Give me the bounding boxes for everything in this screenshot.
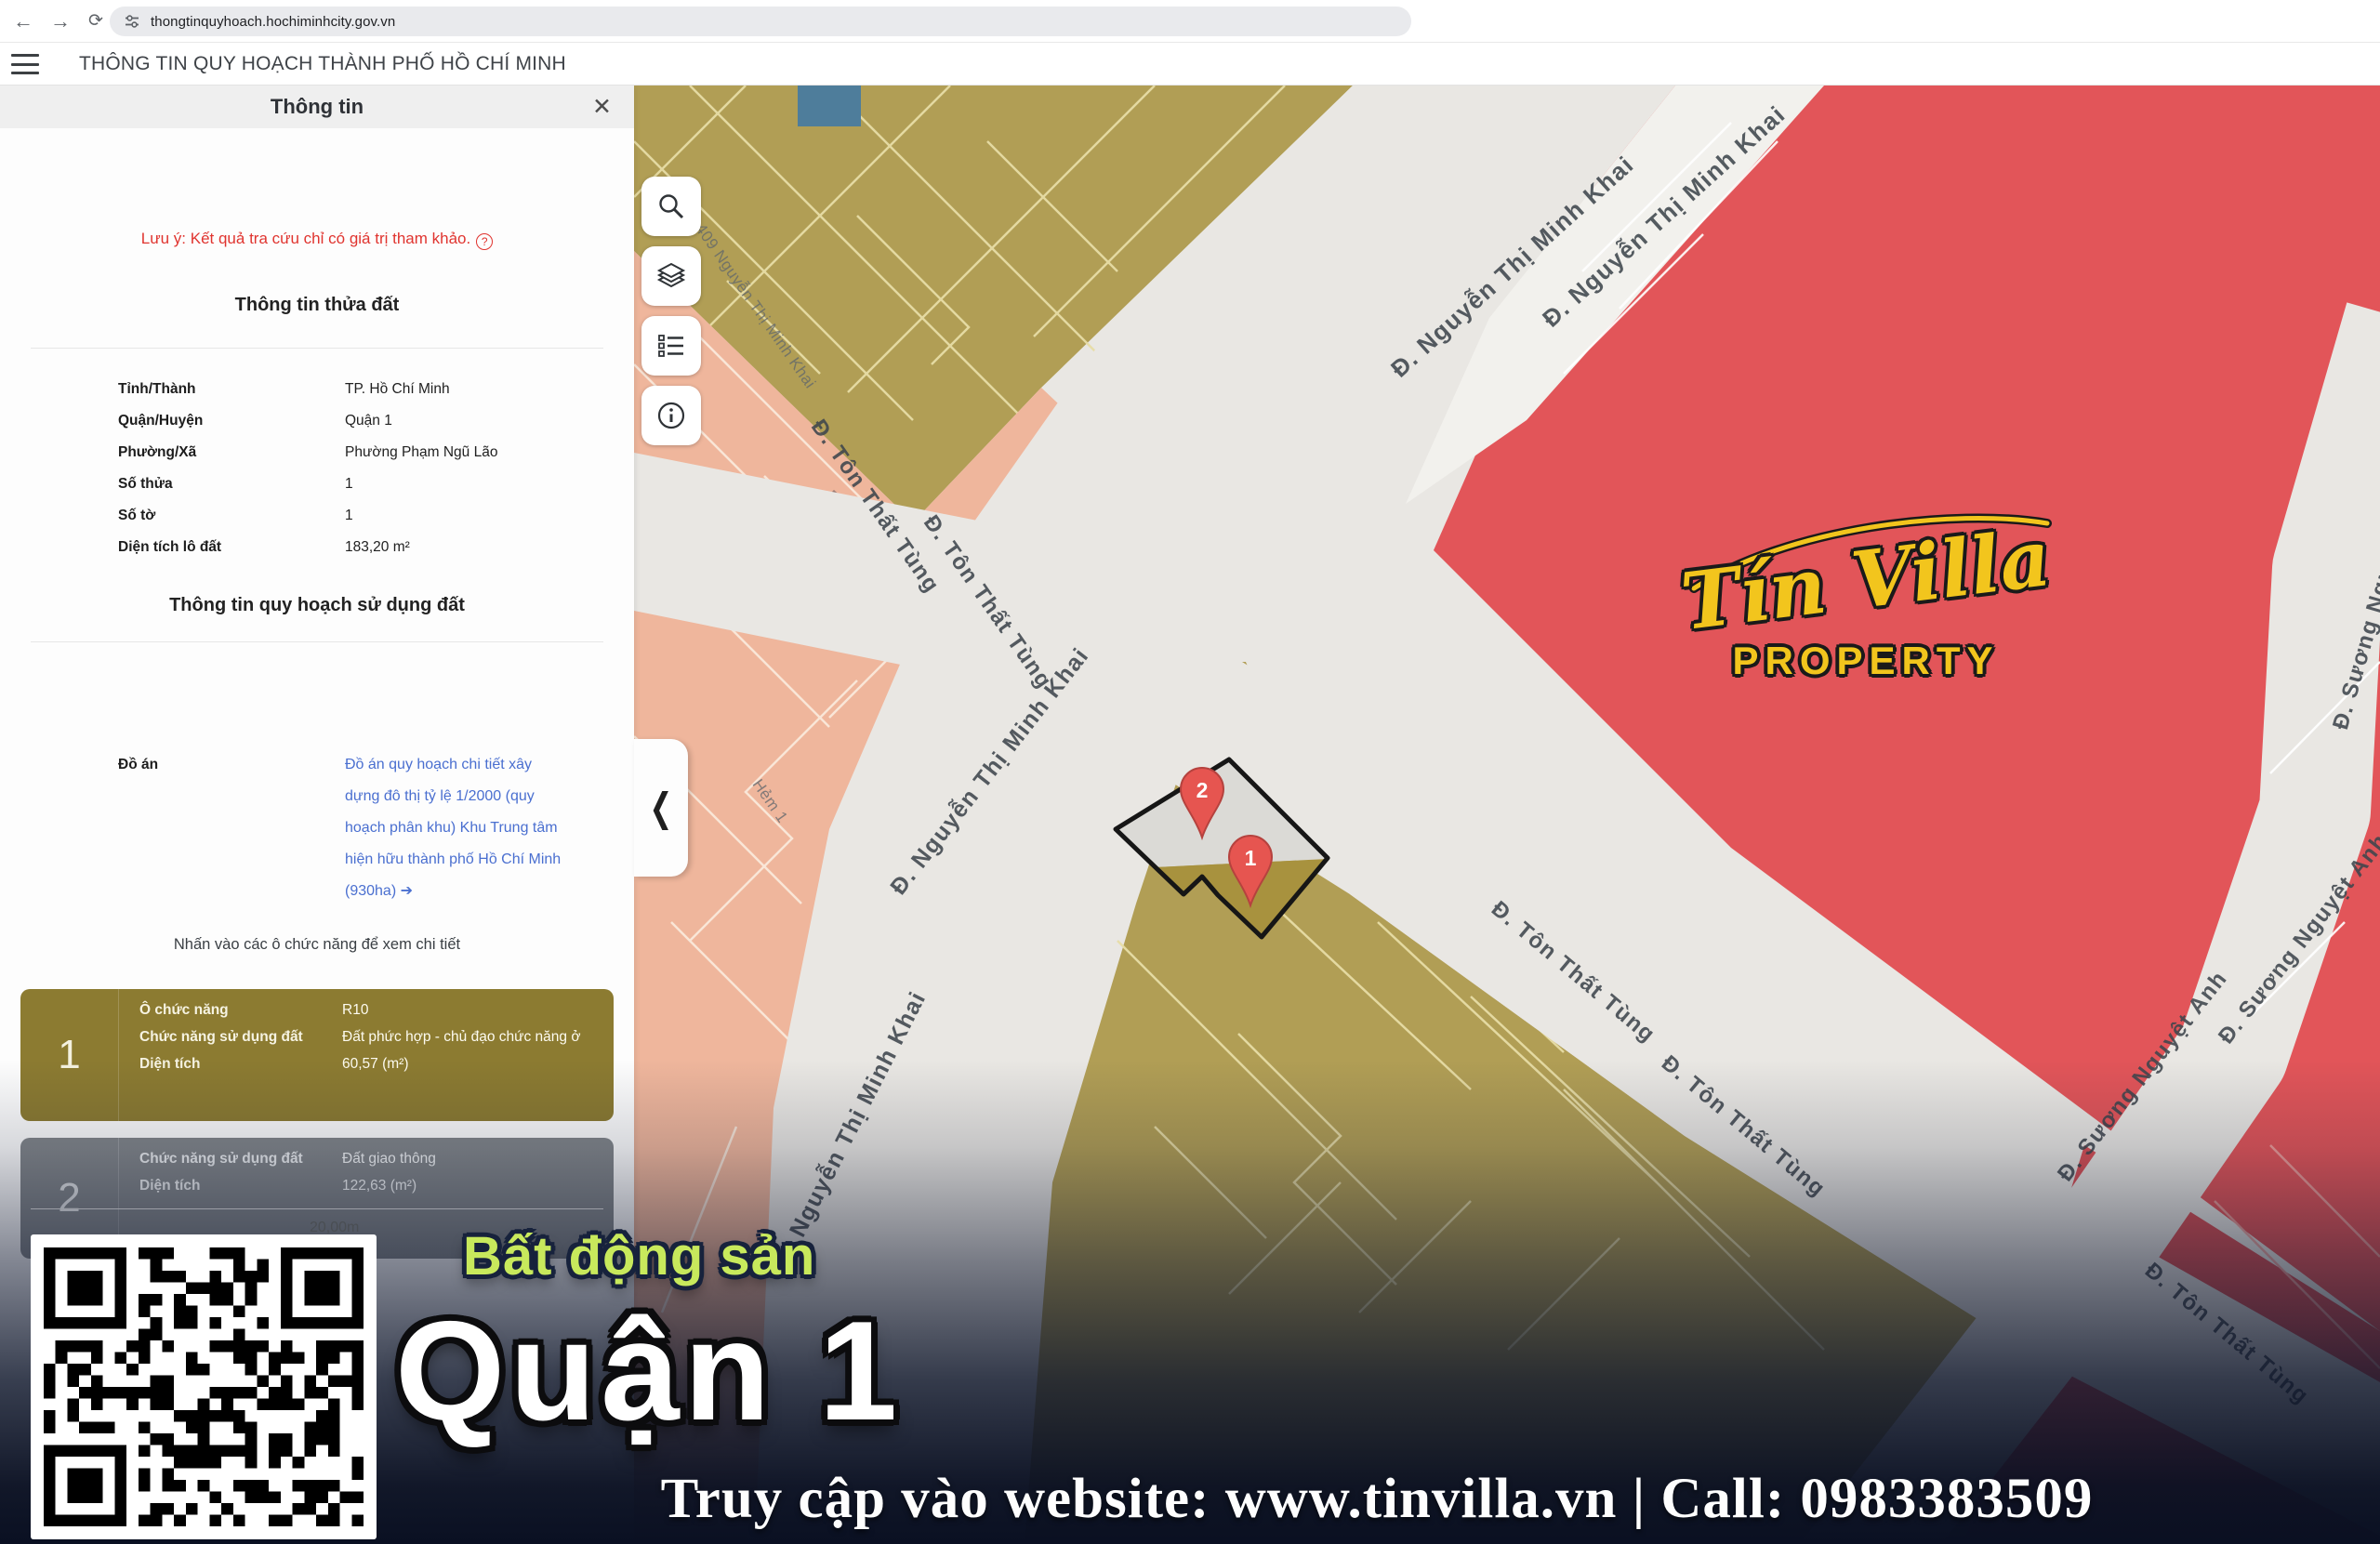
page-title: THÔNG TIN QUY HOẠCH THÀNH PHỐ HỒ CHÍ MIN… <box>79 53 566 75</box>
row-label: Tỉnh/Thành <box>118 374 196 405</box>
row-label: Số thửa <box>118 468 173 500</box>
row-value: 1 <box>345 500 353 532</box>
card-row-value: Đất phức hợp - chủ đạo chức năng ở <box>342 1025 595 1049</box>
info-row: Số tờ1 <box>0 500 634 532</box>
search-icon <box>656 191 686 221</box>
promo-district: Quận 1 <box>395 1290 902 1453</box>
menu-icon[interactable] <box>11 54 39 74</box>
row-label: Diện tích lô đất <box>118 532 221 563</box>
row-value: Quận 1 <box>345 405 392 437</box>
info-row: Phường/XãPhường Phạm Ngũ Lão <box>0 437 634 468</box>
card-row-label: Ô chức năng <box>139 998 342 1023</box>
panel-title: Thông tin <box>0 86 634 128</box>
info-row: Tỉnh/ThànhTP. Hồ Chí Minh <box>0 374 634 405</box>
panel-collapse-tab[interactable]: ❮ <box>634 739 688 877</box>
divider <box>31 348 603 349</box>
site-settings-icon[interactable] <box>123 12 141 31</box>
row-value: 1 <box>345 468 353 500</box>
browser-toolbar: ← → ⟳ thongtinquyhoach.hochiminhcity.gov… <box>0 0 2380 43</box>
app-header: THÔNG TIN QUY HOẠCH THÀNH PHỐ HỒ CHÍ MIN… <box>0 43 2380 86</box>
legend-button[interactable] <box>641 316 701 376</box>
promo-banner: Truy cập vào website: www.tinvilla.vn | … <box>390 1467 2363 1532</box>
qr-code <box>31 1234 377 1539</box>
layers-icon <box>655 260 687 292</box>
search-button[interactable] <box>641 177 701 236</box>
row-label: Phường/Xã <box>118 437 196 468</box>
row-label: Quận/Huyện <box>118 405 203 437</box>
info-row: Diện tích lô đất183,20 m² <box>0 532 634 563</box>
section-planning-title: Thông tin quy hoạch sử dụng đất <box>0 595 634 616</box>
hint-text: Nhấn vào các ô chức năng để xem chi tiết <box>0 936 634 954</box>
promo-tagline: Bất động sản <box>463 1225 815 1287</box>
forward-icon[interactable]: → <box>48 9 73 33</box>
row-value: TP. Hồ Chí Minh <box>345 374 450 405</box>
info-icon <box>655 400 687 431</box>
url-text: thongtinquyhoach.hochiminhcity.gov.vn <box>151 14 395 30</box>
layers-button[interactable] <box>641 246 701 306</box>
marker-2-number: 2 <box>1197 778 1209 802</box>
chevron-left-icon: ❮ <box>649 785 672 831</box>
panel-header: Thông tin ✕ <box>0 86 634 128</box>
address-bar[interactable]: thongtinquyhoach.hochiminhcity.gov.vn <box>110 7 1411 36</box>
legend-list-icon <box>655 330 687 362</box>
info-row: Quận/HuyệnQuận 1 <box>0 405 634 437</box>
section-parcel-title: Thông tin thửa đất <box>0 295 634 316</box>
card-row: Chức năng sử dụng đấtĐất phức hợp - chủ … <box>139 1025 595 1049</box>
promo-overlay: Bất động sản Quận 1 Truy cập vào website… <box>0 1060 2380 1544</box>
close-icon[interactable]: ✕ <box>592 93 612 121</box>
row-value: Phường Phạm Ngũ Lão <box>345 437 497 468</box>
back-icon[interactable]: ← <box>11 9 35 33</box>
info-row: Số thửa1 <box>0 468 634 500</box>
card-row-label: Chức năng sử dụng đất <box>139 1025 342 1049</box>
card-row-value: R10 <box>342 998 595 1023</box>
card-row: Ô chức năngR10 <box>139 998 595 1023</box>
info-button[interactable] <box>641 386 701 445</box>
disclaimer-note: Lưu ý: Kết quả tra cứu chỉ có giá trị th… <box>0 230 634 250</box>
help-icon[interactable]: ? <box>476 233 493 250</box>
doan-link[interactable]: Đồ án quy hoạch chi tiết xây dựng đô thị… <box>345 749 570 907</box>
disclaimer-text: Lưu ý: Kết quả tra cứu chỉ có giá trị th… <box>141 230 470 247</box>
map-scale-label: 20,00m <box>310 1220 359 1236</box>
doan-label: Đồ án <box>118 757 158 773</box>
row-label: Số tờ <box>118 500 155 532</box>
divider <box>31 641 603 642</box>
row-value: 183,20 m² <box>345 532 410 563</box>
marker-1-number: 1 <box>1245 846 1257 870</box>
reload-icon[interactable]: ⟳ <box>84 9 108 33</box>
